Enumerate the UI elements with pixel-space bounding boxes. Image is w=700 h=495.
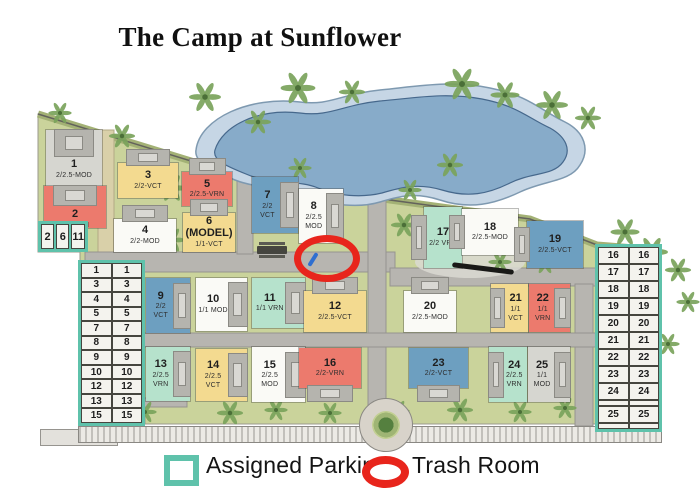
- parking-cell: 18: [598, 281, 629, 298]
- parking-cell: 5: [81, 307, 112, 322]
- parking-cell: 8: [112, 336, 143, 351]
- unit-4: 42/2-MOD: [114, 219, 176, 252]
- assigned-parking-label: Assigned Parking: [206, 452, 388, 479]
- site-map: The Camp at Sunflower 12/2.5-MOD21/1-VRN…: [0, 0, 700, 495]
- parking-cell: 5: [112, 307, 143, 322]
- unit-label: 162/2-VRN: [299, 348, 361, 388]
- parking-cell: 3: [81, 278, 112, 293]
- unit-label: 6 (MODEL)1/1-VCT: [183, 213, 235, 252]
- unit-type: 1/1-VCT: [193, 240, 224, 249]
- unit-label: 92/2 VCT: [146, 278, 190, 333]
- unit-type: 2/2-VRN: [314, 369, 346, 378]
- parking-cell: 21: [598, 332, 629, 349]
- unit-number: 20: [424, 301, 436, 313]
- picnic-table-icon: [257, 246, 287, 254]
- unit-label: 32/2-VCT: [118, 163, 178, 198]
- unit-label: 122/2.5-VCT: [304, 291, 366, 332]
- parking-cell: 16: [598, 247, 629, 264]
- parking-box-2-6-11: 2611: [38, 221, 88, 252]
- unit-label: 182/2.5-MOD: [462, 209, 518, 255]
- parking-cell: 7: [112, 321, 143, 336]
- unit-type: 1/1 VRN: [254, 304, 286, 313]
- unit-type: 2/2-VCT: [423, 369, 454, 378]
- unit-label: 242/2.5 VRN: [489, 347, 527, 402]
- unit-number: 4: [142, 225, 148, 237]
- parking-cell: 2: [41, 224, 54, 249]
- unit-number: 13: [155, 359, 167, 371]
- unit-number: 14: [207, 360, 219, 372]
- unit-type: 2/2.5 MOD: [252, 371, 288, 389]
- unit-label: 221/1 VRN: [529, 284, 570, 332]
- unit-label: 142/2.5 VCT: [196, 349, 247, 401]
- unit-number: 21: [509, 293, 521, 305]
- parking-cell: 17: [629, 264, 660, 281]
- parking-cell: 1: [81, 263, 112, 278]
- unit-label: 132/2.5 VRN: [146, 347, 190, 401]
- roundabout: [359, 398, 413, 452]
- parking-cell: 19: [598, 298, 629, 315]
- unit-type: 2/2 VCT: [146, 302, 175, 320]
- legend: Assigned Parking Trash Room: [0, 449, 700, 495]
- unit-number: 11: [264, 293, 276, 305]
- parking-cell: 6: [56, 224, 69, 249]
- unit-number: 2: [72, 209, 78, 221]
- parking-cell: 15: [81, 408, 112, 423]
- assigned-parking-table-right: 1616171718181919202021212222232324242525: [595, 244, 662, 432]
- unit-23: 232/2-VCT: [409, 348, 468, 388]
- page-title: The Camp at Sunflower: [0, 22, 520, 53]
- unit-number: 19: [549, 234, 561, 246]
- parking-cell: 23: [629, 366, 660, 383]
- parking-cell: 25: [598, 406, 629, 423]
- unit-label: 251/1 MOD: [528, 347, 570, 402]
- unit-type: 2/2.5 VRN: [146, 371, 175, 389]
- building-footprint: [308, 386, 351, 401]
- unit-number: 16: [324, 358, 336, 370]
- unit-label: 192/2.5-VCT: [527, 221, 583, 268]
- unit-label: 42/2-MOD: [114, 219, 176, 252]
- unit-21: 211/1 VCT: [491, 284, 528, 332]
- unit-label: 101/1 MOD: [196, 278, 247, 331]
- parking-cell: 18: [629, 281, 660, 298]
- parking-cell: 16: [629, 247, 660, 264]
- trash-room-oval-icon: [362, 456, 409, 488]
- parking-cell: 4: [112, 292, 143, 307]
- parking-cell: 4: [81, 292, 112, 307]
- unit-type: 2/2-MOD: [128, 237, 162, 246]
- unit-19: 192/2.5-VCT: [527, 221, 583, 268]
- unit-type: 2/2 VCT: [252, 202, 283, 220]
- parking-cell: 7: [81, 321, 112, 336]
- assigned-parking-table-left: 113344557788991010121213131515: [78, 260, 145, 426]
- parking-cell: 10: [81, 365, 112, 380]
- unit-number: 5: [204, 179, 210, 191]
- parking-cell: 13: [112, 394, 143, 409]
- unit-label: 152/2.5 MOD: [252, 347, 305, 402]
- unit-type: 2/2.5-MOD: [410, 313, 450, 322]
- building-footprint: [418, 386, 459, 401]
- unit-label: 111/1 VRN: [252, 278, 305, 328]
- unit-number: 25: [536, 360, 548, 372]
- unit-type: 2/2.5 VRN: [502, 371, 527, 389]
- unit-3: 32/2-VCT: [118, 163, 178, 198]
- parking-cell: 20: [629, 315, 660, 332]
- unit-type: 2/2.5-VCT: [316, 313, 354, 322]
- parking-cell: 20: [598, 315, 629, 332]
- parking-cell: 24: [598, 383, 629, 400]
- unit-label: 12/2.5-MOD: [46, 130, 102, 187]
- unit-number: 10: [207, 294, 219, 306]
- unit-type: 2/2.5-MOD: [470, 233, 510, 242]
- parking-cell: 22: [629, 349, 660, 366]
- unit-type: 2/2.5 MOD: [299, 213, 328, 231]
- parking-cell: 9: [81, 350, 112, 365]
- unit-number: 18: [484, 222, 496, 234]
- unit-label: 232/2-VCT: [409, 348, 468, 388]
- unit-1: 12/2.5-MOD: [46, 130, 102, 187]
- parking-cell: 9: [112, 350, 143, 365]
- unit-label: 211/1 VCT: [491, 284, 528, 332]
- parking-cell: 3: [112, 278, 143, 293]
- parking-cell: 25: [629, 406, 660, 423]
- unit-type: 1/1 VRN: [529, 305, 556, 323]
- parking-cell: 24: [629, 383, 660, 400]
- unit-11: 111/1 VRN: [252, 278, 305, 328]
- assigned-parking-swatch-icon: [164, 455, 199, 486]
- unit-number: 22: [537, 293, 549, 305]
- unit-20: 202/2.5-MOD: [404, 291, 456, 332]
- parking-cell: 8: [81, 336, 112, 351]
- parking-cell: 15: [112, 408, 143, 423]
- unit-24: 242/2.5 VRN: [489, 347, 527, 402]
- unit-type: 1/1 MOD: [528, 371, 556, 389]
- unit-number: 1: [71, 159, 77, 171]
- parking-cell: [598, 423, 629, 429]
- unit-15: 152/2.5 MOD: [252, 347, 305, 402]
- unit-number: 24: [508, 360, 520, 372]
- unit-number: 6 (MODEL): [183, 216, 235, 239]
- unit-6: 6 (MODEL)1/1-VCT: [183, 213, 235, 252]
- parking-cell: 1: [112, 263, 143, 278]
- parking-cell: 19: [629, 298, 660, 315]
- unit-type: 2/2-VCT: [132, 182, 163, 191]
- unit-number: 9: [158, 291, 164, 303]
- parking-cell: 17: [598, 264, 629, 281]
- unit-14: 142/2.5 VCT: [196, 349, 247, 401]
- unit-9: 92/2 VCT: [146, 278, 190, 333]
- parking-cell: 12: [81, 379, 112, 394]
- unit-number: 15: [264, 360, 276, 372]
- unit-number: 3: [145, 170, 151, 182]
- unit-number: 8: [311, 201, 317, 213]
- unit-label: 72/2 VCT: [252, 177, 298, 233]
- parking-cell: 12: [112, 379, 143, 394]
- trash-room-marker: [294, 235, 360, 282]
- unit-type: 2/2.5-VRN: [188, 190, 226, 199]
- unit-7: 72/2 VCT: [252, 177, 298, 233]
- parking-cell: 13: [81, 394, 112, 409]
- parking-cell: 23: [598, 366, 629, 383]
- parking-cell: 22: [598, 349, 629, 366]
- unit-label: 202/2.5-MOD: [404, 291, 456, 332]
- unit-22: 221/1 VRN: [529, 284, 570, 332]
- unit-12: 122/2.5-VCT: [304, 291, 366, 332]
- unit-18: 182/2.5-MOD: [462, 209, 518, 255]
- unit-10: 101/1 MOD: [196, 278, 247, 331]
- unit-type: 1/1 MOD: [196, 306, 229, 315]
- parking-cell: [629, 423, 660, 429]
- trash-room-label: Trash Room: [412, 452, 540, 479]
- unit-13: 132/2.5 VRN: [146, 347, 190, 401]
- unit-16: 162/2-VRN: [299, 348, 361, 388]
- unit-type: 2/2.5-VCT: [536, 246, 574, 255]
- unit-number: 7: [264, 190, 270, 202]
- parking-cell: 11: [71, 224, 85, 249]
- unit-type: 2/2.5-MOD: [54, 171, 94, 180]
- unit-type: 1/1 VCT: [503, 305, 528, 323]
- unit-25: 251/1 MOD: [528, 347, 570, 402]
- parking-cell: 21: [629, 332, 660, 349]
- unit-type: 2/2.5 VCT: [196, 372, 230, 390]
- unit-number: 23: [432, 358, 444, 370]
- unit-number: 12: [329, 301, 341, 313]
- parking-cell: 10: [112, 365, 143, 380]
- unit-number: 17: [437, 227, 449, 239]
